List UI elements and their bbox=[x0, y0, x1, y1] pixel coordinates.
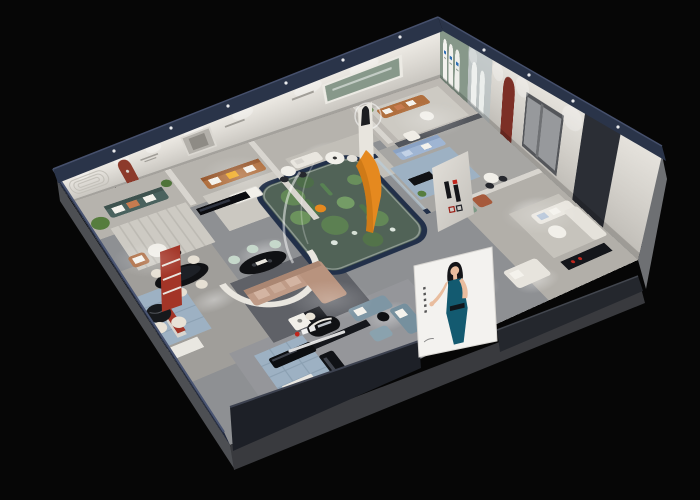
glass-reflection-streak bbox=[284, 172, 300, 263]
base-slab-left bbox=[57, 180, 235, 470]
front-fascia-right bbox=[497, 276, 643, 352]
roofline-back-right bbox=[438, 17, 666, 161]
foreground-layer bbox=[0, 0, 700, 500]
showroom-render bbox=[0, 0, 700, 500]
sign-glyph-block bbox=[309, 325, 316, 332]
glass-reflection-streak-2 bbox=[301, 163, 314, 244]
poster-billboard bbox=[414, 247, 497, 357]
roof-highlight bbox=[438, 17, 662, 146]
right-outer-wall bbox=[638, 155, 667, 289]
sign-caption bbox=[317, 321, 331, 328]
roof-highlight bbox=[53, 17, 438, 169]
ambient-glows bbox=[112, 102, 580, 320]
sign-logo-red-dot bbox=[294, 331, 300, 337]
logo-wall-face bbox=[432, 151, 474, 232]
woman-neck bbox=[453, 274, 457, 280]
brand-logo-wall bbox=[432, 151, 474, 232]
logo-red-block bbox=[452, 180, 457, 185]
storefront-sign bbox=[283, 316, 345, 353]
left-wall-top-edge bbox=[53, 169, 224, 432]
sign-glyph-block bbox=[301, 328, 308, 335]
